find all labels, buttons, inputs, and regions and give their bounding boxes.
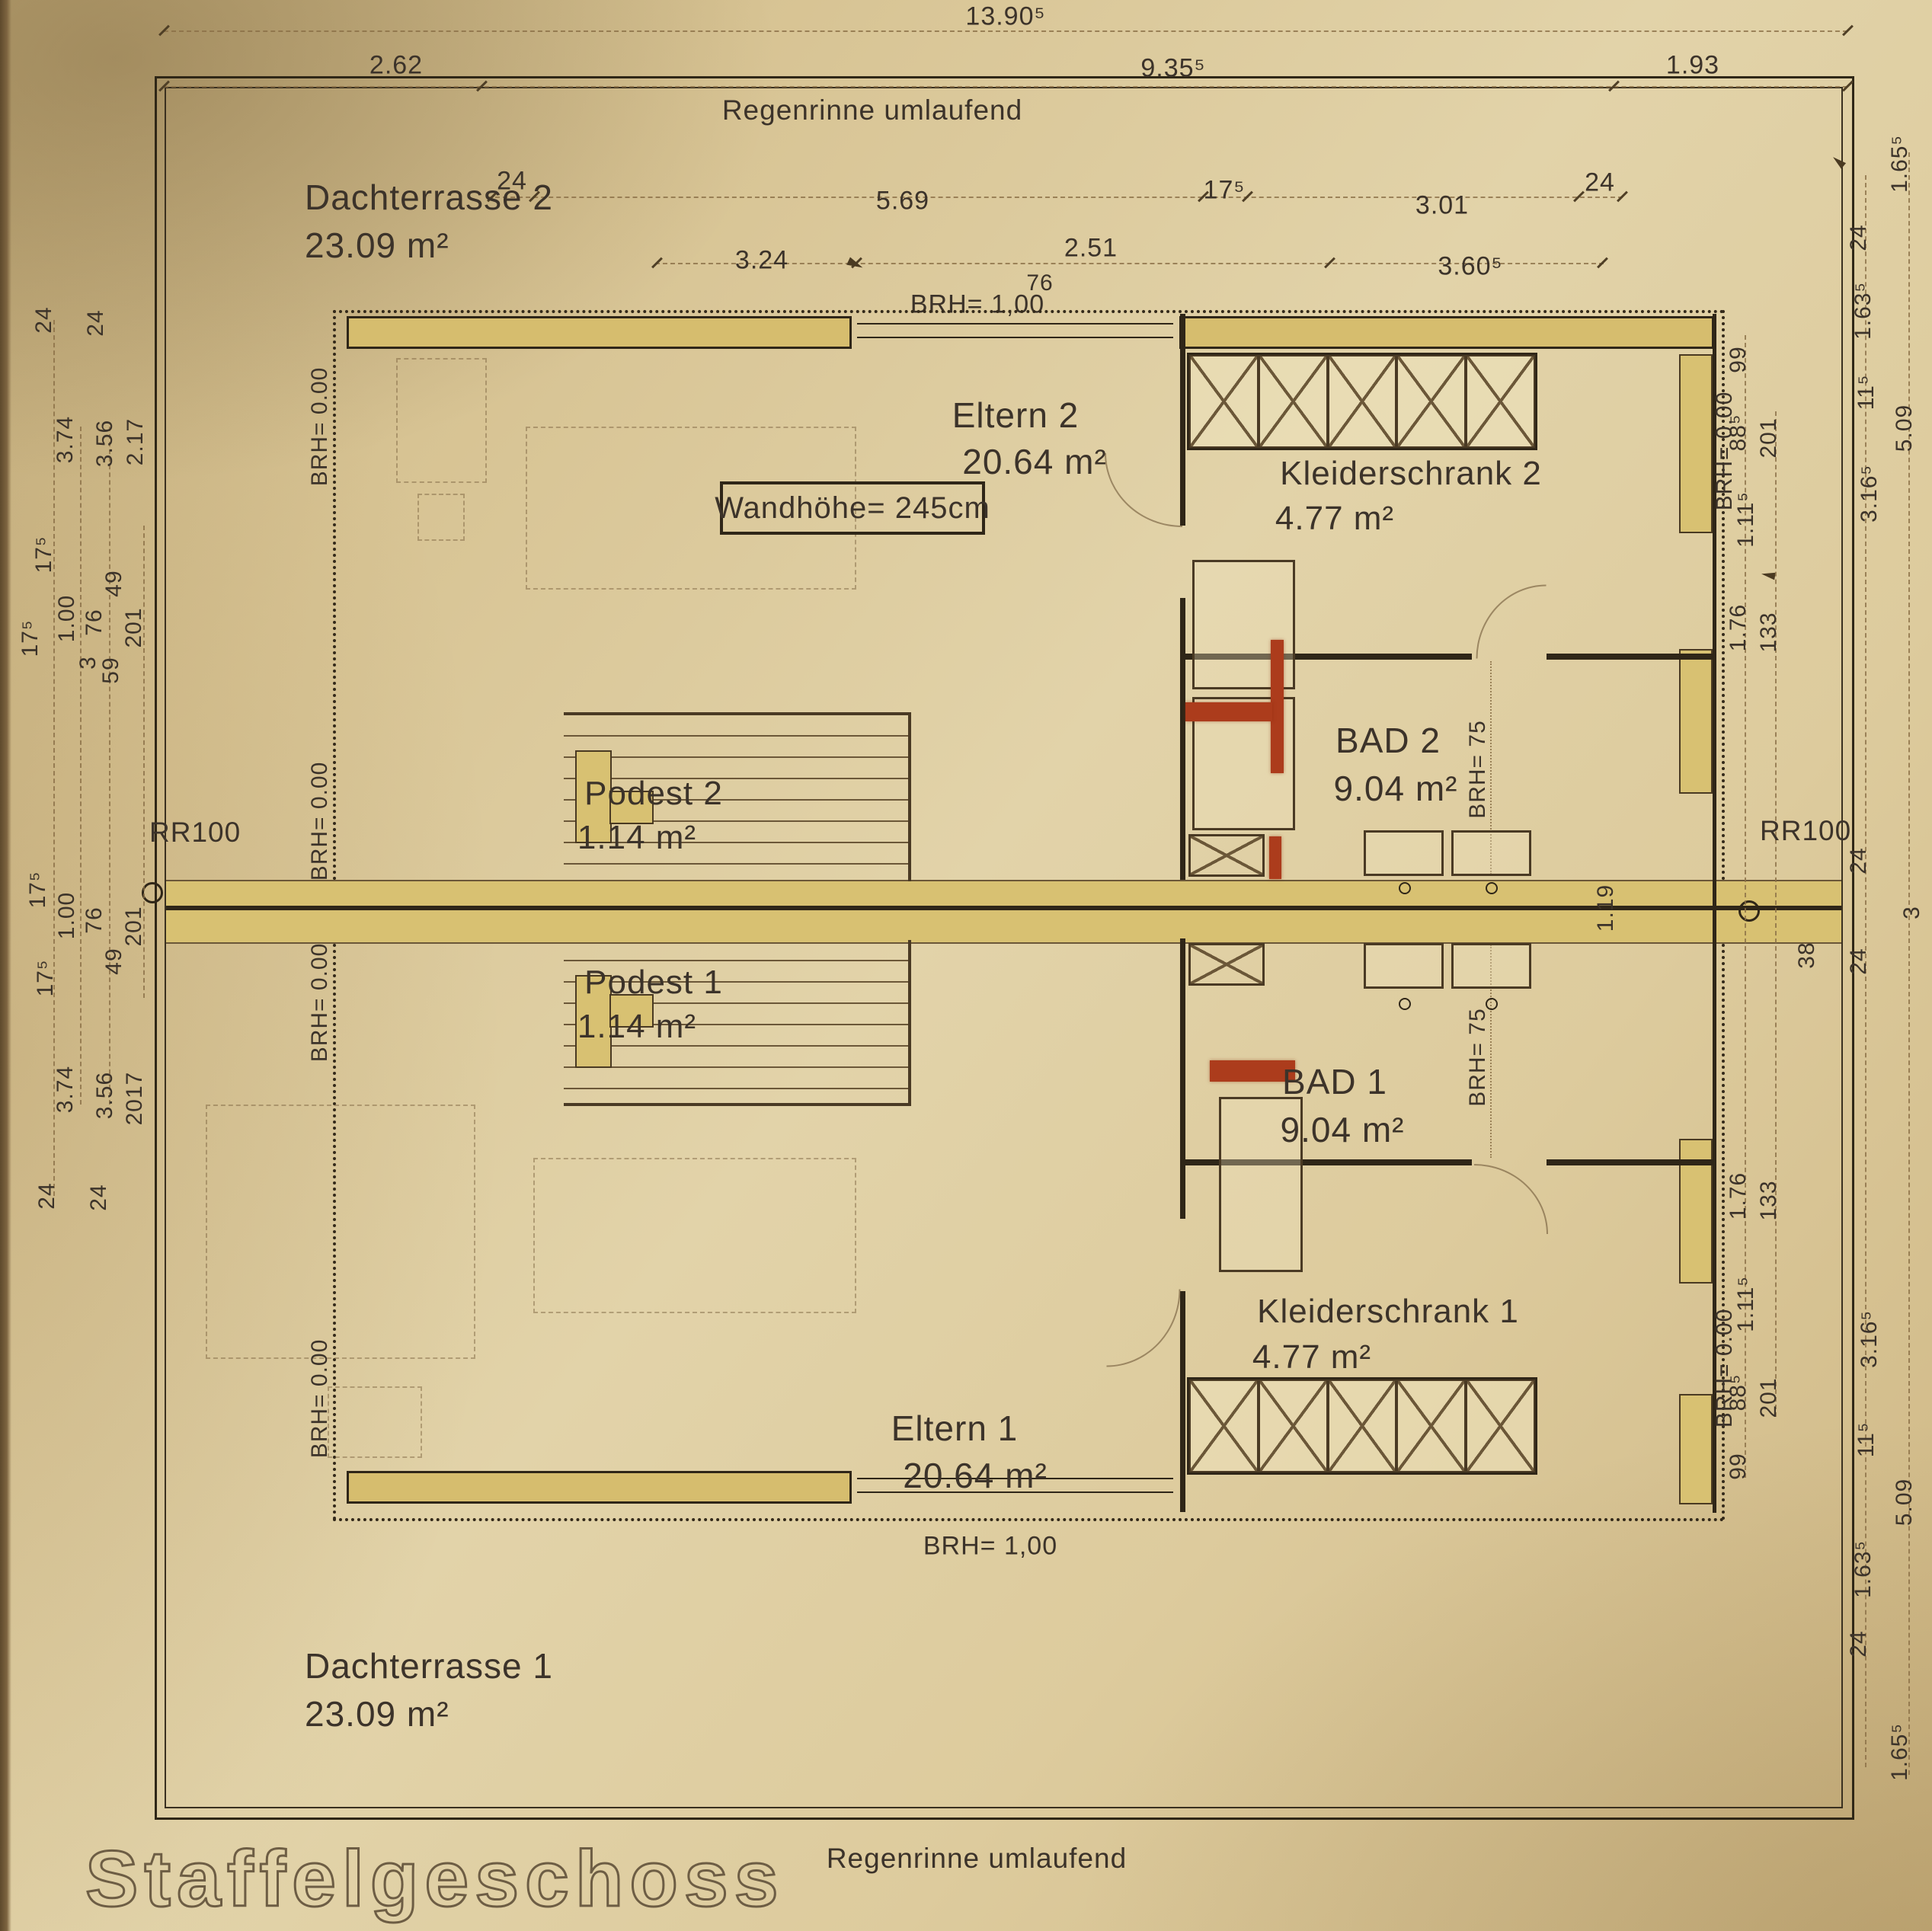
room-label: Dachterrasse 2 [305, 177, 553, 218]
dim-360: 3.60⁵ [1438, 252, 1502, 282]
dim: 2017 [122, 1072, 148, 1126]
dim: 3.74 [53, 1066, 78, 1113]
dim: 201 [121, 607, 147, 647]
dim: 3 [1899, 906, 1925, 919]
furniture-outline [328, 1386, 422, 1458]
wall-right-pier [1679, 354, 1713, 533]
sink [1451, 830, 1531, 876]
dim-935: 9.35⁵ [1140, 54, 1205, 84]
wardrobe-cell [1259, 355, 1328, 448]
dim: 49 [101, 570, 127, 596]
dim: 11⁵ [1854, 375, 1879, 411]
dim-line-chain2 [164, 86, 1847, 88]
dim: 1.11⁵ [1733, 1276, 1759, 1332]
dim: 49 [101, 948, 127, 974]
dim: 1.00 [54, 595, 80, 642]
dim: 3.16⁵ [1857, 465, 1882, 523]
wardrobe-row-1 [1187, 1377, 1537, 1475]
dim: 3.56 [92, 1072, 118, 1119]
drawing-title: Staffelgeschoss [85, 1834, 785, 1925]
dim: 1.00 [54, 892, 80, 939]
room-area: 4.77 m² [1275, 500, 1394, 538]
room-area: 1.14 m² [577, 819, 696, 857]
dim: 24 [1846, 847, 1872, 874]
sink [1364, 943, 1444, 989]
dim-324: 3.24 [735, 246, 788, 276]
wardrobe-row-2 [1187, 353, 1537, 450]
brh-label: BRH= 0.00 [307, 943, 333, 1063]
dim: 76 [82, 609, 107, 635]
dim: 24 [31, 306, 57, 333]
dim: 201 [1756, 417, 1782, 458]
wardrobe-cell [1189, 355, 1259, 448]
window-line [857, 323, 1173, 324]
room-label: Kleiderschrank 2 [1280, 455, 1542, 493]
washer-box [1188, 943, 1265, 986]
dim: 1.65⁵ [1887, 1723, 1913, 1781]
room-area: 23.09 m² [305, 1693, 449, 1734]
wall-divider [1547, 654, 1716, 660]
dim: 1.63⁵ [1850, 282, 1876, 340]
wall-interior [1180, 1291, 1185, 1512]
dim: 17⁵ [33, 960, 59, 997]
wardrobe-cell [1328, 1380, 1397, 1472]
wall-height-label: Wandhöhe= 245cm [715, 491, 990, 526]
room-area: 1.14 m² [577, 1008, 696, 1046]
brh-label: BRH= 0.00 [307, 1339, 333, 1459]
room-label: Eltern 1 [891, 1408, 1019, 1449]
dim: 2.17 [123, 418, 149, 465]
floorplan-staffelgeschoss: 13.90⁵ 2.62 9.35⁵ 1.93 Regenrinne umlauf… [0, 0, 1932, 1931]
room-area: 9.04 m² [1334, 768, 1458, 809]
rr100-left-label: RR100 [149, 817, 241, 849]
dim: 17⁵ [18, 620, 43, 657]
dim-569: 5.69 [876, 187, 929, 216]
wall-top-right [1179, 316, 1714, 349]
dim: 133 [1756, 612, 1782, 652]
dim-175-a: 17⁵ [1204, 176, 1246, 206]
dim: 24 [1846, 948, 1872, 974]
dim: 99 [1726, 346, 1751, 372]
sink [1364, 830, 1444, 876]
room-label: Podest 1 [584, 964, 723, 1002]
wardrobe-cell [1396, 355, 1466, 448]
wall-top-left [347, 316, 852, 349]
furniture-outline [206, 1105, 475, 1359]
dim: 1.65⁵ [1887, 135, 1913, 193]
brh-label: BRH= 75 [1465, 720, 1491, 819]
dim: 88⁵ [1726, 1374, 1751, 1411]
regenrinne-top-label: Regenrinne umlaufend [722, 94, 1022, 126]
furniture-outline [417, 494, 465, 541]
dim: 24 [86, 1184, 112, 1210]
dim: 201 [1756, 1377, 1782, 1418]
wall-divider [1547, 1159, 1716, 1165]
regenrinne-bottom-label: Regenrinne umlaufend [827, 1843, 1127, 1875]
party-wall [166, 880, 1841, 944]
gutter-outlet-right [1738, 900, 1760, 922]
dim: 88⁵ [1726, 414, 1751, 452]
dim: 24 [83, 309, 109, 336]
dim-251: 2.51 [1064, 234, 1118, 264]
wardrobe-cell [1396, 1380, 1466, 1472]
furniture-outline [396, 358, 487, 483]
dim: 3.74 [53, 416, 78, 463]
dim: 17⁵ [25, 871, 51, 909]
dim: 5.09 [1892, 404, 1918, 452]
room-label: Kleiderschrank 1 [1257, 1293, 1519, 1331]
dim: 99 [1726, 1453, 1751, 1479]
wardrobe-cell [1466, 355, 1535, 448]
window-line [857, 337, 1173, 338]
dim: 17⁵ [31, 536, 57, 574]
dim: 24 [1846, 1630, 1872, 1657]
wardrobe-cell [1328, 355, 1397, 448]
dim-24-b: 24 [1585, 168, 1615, 198]
dim: 1.63⁵ [1850, 1540, 1876, 1598]
dim: 38 [1794, 942, 1820, 968]
wall-height-box: Wandhöhe= 245cm [720, 481, 985, 535]
room-area: 20.64 m² [962, 441, 1107, 482]
paper-edge [0, 0, 11, 1931]
room-area: 9.04 m² [1281, 1109, 1405, 1150]
dim: 201 [121, 906, 147, 946]
dim: 24 [34, 1182, 60, 1209]
dim-262: 2.62 [369, 51, 423, 81]
highlighted-wall [1269, 836, 1281, 879]
brh-label: BRH= 0.00 [307, 367, 333, 487]
room-label: Eltern 2 [952, 395, 1080, 436]
dim: 133 [1756, 1180, 1782, 1220]
brh100-bottom-label: BRH= 1,00 [923, 1532, 1057, 1562]
dim: 11⁵ [1854, 1422, 1879, 1458]
dim: 3 [75, 656, 101, 670]
room-label: BAD 1 [1282, 1061, 1387, 1102]
rr100-right-label: RR100 [1760, 815, 1851, 847]
dim: 76 [82, 906, 107, 933]
party-wall-centerline [166, 906, 1841, 910]
dim-total: 13.90⁵ [965, 2, 1045, 32]
drain [1486, 882, 1498, 894]
wall-bottom-left [347, 1471, 852, 1504]
wardrobe-cell [1466, 1380, 1535, 1472]
dim: 1.19 [1593, 884, 1619, 932]
gutter-outlet-left [142, 882, 163, 903]
wall-interior [1180, 598, 1185, 880]
room-label: Podest 2 [584, 775, 723, 813]
wall-right-pier [1679, 649, 1713, 794]
room-area: 20.64 m² [903, 1455, 1048, 1496]
dim: 59 [98, 657, 124, 683]
room-label: Dachterrasse 1 [305, 1645, 553, 1686]
brh-label: BRH= 0.00 [307, 762, 333, 881]
wall-interior [1180, 938, 1185, 1219]
dim-193: 1.93 [1666, 51, 1719, 81]
dim-301: 3.01 [1415, 191, 1469, 221]
dim: 1.76 [1726, 604, 1751, 651]
furniture-outline [533, 1158, 856, 1313]
drain [1399, 882, 1411, 894]
room-label: BAD 2 [1335, 720, 1441, 761]
dim: 24 [1846, 224, 1872, 251]
highlighted-wall [1185, 702, 1272, 721]
dim: 1.76 [1726, 1172, 1751, 1220]
dim: 3.56 [92, 420, 118, 467]
sink [1451, 943, 1531, 989]
highlighted-wall [1271, 640, 1284, 773]
brh-label: BRH= 75 [1465, 1008, 1491, 1107]
wall-right-pier [1679, 1394, 1713, 1504]
dim: 3.16⁵ [1857, 1310, 1882, 1368]
wardrobe-cell [1259, 1380, 1328, 1472]
room-area: 23.09 m² [305, 225, 449, 266]
dim: 5.09 [1892, 1479, 1918, 1526]
washer-box [1188, 834, 1265, 877]
drain [1399, 998, 1411, 1010]
wardrobe-cell [1189, 1380, 1259, 1472]
dim: 1.11⁵ [1733, 491, 1759, 548]
room-area: 4.77 m² [1252, 1338, 1371, 1376]
